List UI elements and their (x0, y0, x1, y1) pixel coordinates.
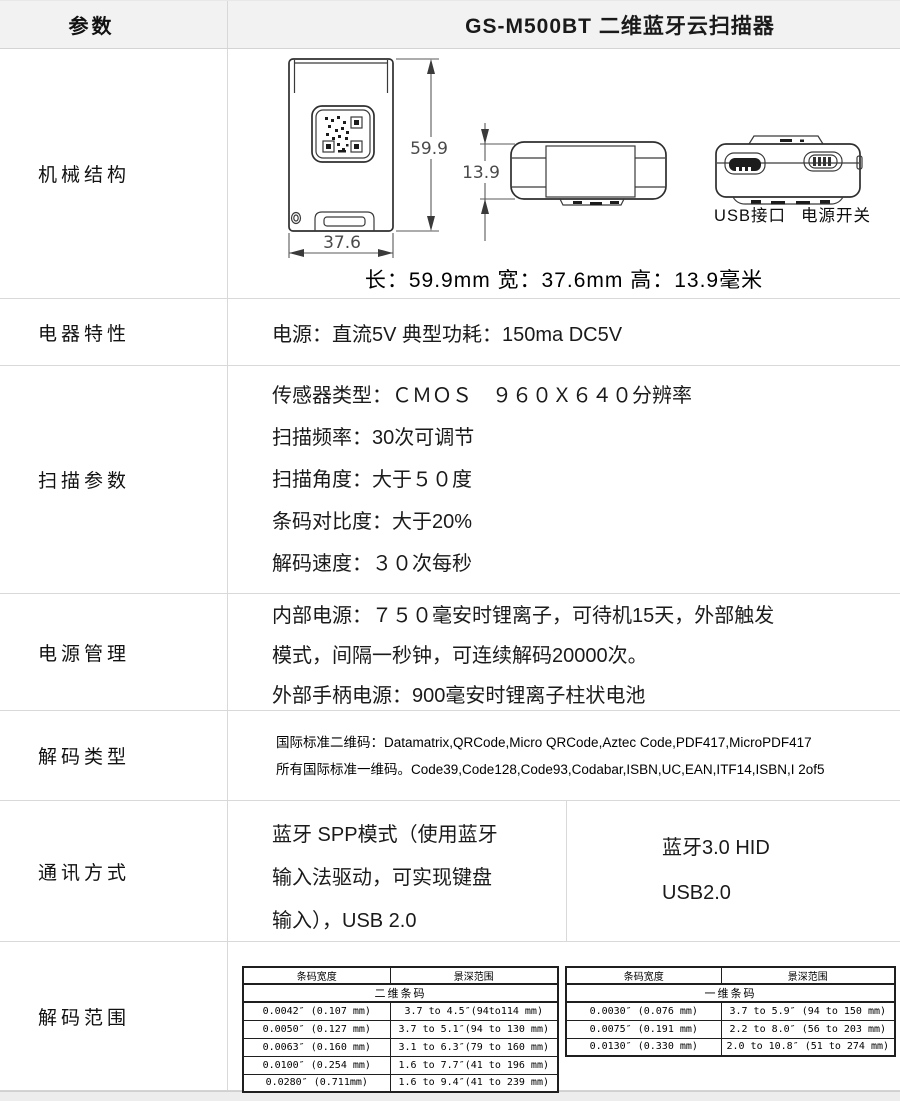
table-cell: 0.0100″ (0.254 mm) (243, 1056, 390, 1074)
scan-spec-line: 扫描频率：30次可调节 (272, 417, 900, 459)
table-cell: 0.0030″ (0.076 mm) (566, 1002, 721, 1020)
power-spec-line: 外部手柄电源：900毫安时锂离子柱状电池 (272, 676, 900, 716)
row-label-communication: 通讯方式 (0, 801, 228, 941)
dimension-59-9: 59.9 (396, 59, 454, 231)
row-electrical: 电器特性 电源：直流5V 典型功耗：150ma DC5V (0, 299, 900, 366)
usb-port-label: USB接口 (714, 206, 786, 225)
comm-line: 输入法驱动，可实现键盘 (272, 857, 566, 900)
scanner-front-view (289, 59, 393, 231)
row-communication: 通讯方式 蓝牙 SPP模式（使用蓝牙 输入法驱动，可实现键盘 输入），USB 2… (0, 801, 900, 942)
column-header: 景深范围 (390, 967, 558, 984)
table-cell: 2.0 to 10.8″ (51 to 274 mm) (721, 1038, 895, 1056)
scan-spec-line: 条码对比度：大于20% (272, 501, 900, 543)
svg-text:37.6: 37.6 (323, 233, 361, 253)
dimension-13-9: 13.9 (457, 123, 515, 241)
row-label-electrical: 电器特性 (0, 299, 228, 365)
table-cell: 2.2 to 8.0″ (56 to 203 mm) (721, 1020, 895, 1038)
column-header: 条码宽度 (243, 967, 390, 984)
dimension-caption: 长：59.9mm 宽：37.6mm 高：13.9毫米 (228, 261, 900, 297)
svg-text:59.9: 59.9 (410, 139, 448, 159)
table-row: 0.0050″ (0.127 mm)3.7 to 5.1″(94 to 130 … (243, 1020, 558, 1038)
table-cell: 0.0280″ (0.711mm) (243, 1074, 390, 1092)
row-label-power: 电源管理 (0, 594, 228, 710)
table-section-title: 一维条码 (566, 984, 895, 1002)
table-cell: 0.0130″ (0.330 mm) (566, 1038, 721, 1056)
decode-type-line: 所有国际标准一维码。Code39,Code128,Code93,Codabar,… (276, 756, 900, 783)
product-title: GS-M500BT 二维蓝牙云扫描器 (228, 1, 900, 48)
table-cell: 0.0042″ (0.107 mm) (243, 1002, 390, 1020)
row-decode-types: 解码类型 国际标准二维码：Datamatrix,QRCode,Micro QRC… (0, 711, 900, 801)
comm-line: 输入），USB 2.0 (272, 900, 566, 943)
row-label-mechanical: 机械结构 (0, 49, 228, 298)
comm-line: 蓝牙 SPP模式（使用蓝牙 (272, 814, 566, 857)
table-cell: 1.6 to 7.7″(41 to 196 mm) (390, 1056, 558, 1074)
electrical-spec-text: 电源：直流5V 典型功耗：150ma DC5V (228, 299, 900, 365)
communication-spp-cell: 蓝牙 SPP模式（使用蓝牙 输入法驱动，可实现键盘 输入），USB 2.0 (228, 801, 567, 941)
row-power: 电源管理 内部电源：７５０毫安时锂离子，可待机15天，外部触发 模式，间隔一秒钟… (0, 594, 900, 711)
header-param-label: 参数 (0, 1, 228, 48)
decode-type-line: 国际标准二维码：Datamatrix,QRCode,Micro QRCode,A… (276, 729, 900, 756)
usb-port-icon (725, 153, 765, 174)
scan-spec-line: 解码速度：３０次每秒 (272, 543, 900, 585)
power-switch-label: 电源开关 (801, 206, 871, 225)
dimension-37-6: 37.6 (289, 233, 393, 258)
table-cell: 3.7 to 5.1″(94 to 130 mm) (390, 1020, 558, 1038)
scanner-port-view: USB接口 电源开关 (714, 136, 871, 225)
table-row: 0.0100″ (0.254 mm)1.6 to 7.7″(41 to 196 … (243, 1056, 558, 1074)
comm-line: 蓝牙3.0 HID (662, 826, 900, 871)
row-mechanical: 机械结构 (0, 49, 900, 299)
decode-range-table-1d: 条码宽度 景深范围 一维条码 0.0030″ (0.076 mm)3.7 to … (565, 966, 896, 1057)
svg-text:13.9: 13.9 (462, 163, 500, 183)
table-cell: 0.0063″ (0.160 mm) (243, 1038, 390, 1056)
column-header: 条码宽度 (566, 967, 721, 984)
table-cell: 3.7 to 4.5″(94to114 mm) (390, 1002, 558, 1020)
scan-spec-line: 传感器类型：ＣＭＯＳ ９６０Ｘ６４０分辨率 (272, 375, 900, 417)
comm-line: USB2.0 (662, 871, 900, 916)
row-scanning: 扫描参数 传感器类型：ＣＭＯＳ ９６０Ｘ６４０分辨率 扫描频率：30次可调节 扫… (0, 366, 900, 594)
table-row: 0.0030″ (0.076 mm)3.7 to 5.9″ (94 to 150… (566, 1002, 895, 1020)
row-label-scanning: 扫描参数 (0, 366, 228, 593)
table-row: 0.0130″ (0.330 mm)2.0 to 10.8″ (51 to 27… (566, 1038, 895, 1056)
power-switch-icon (804, 152, 842, 171)
row-label-decode-range: 解码范围 (0, 942, 228, 1090)
scanner-dimension-drawing: 59.9 37.6 13.9 (228, 49, 899, 261)
table-cell: 0.0050″ (0.127 mm) (243, 1020, 390, 1038)
scan-spec-line: 扫描角度：大于５０度 (272, 459, 900, 501)
communication-hid-cell: 蓝牙3.0 HID USB2.0 (567, 801, 900, 941)
scanner-side-view (511, 142, 666, 205)
table-section-title: 二维条码 (243, 984, 558, 1002)
table-row: 0.0280″ (0.711mm)1.6 to 9.4″(41 to 239 m… (243, 1074, 558, 1092)
header-row: 参数 GS-M500BT 二维蓝牙云扫描器 (0, 1, 900, 49)
table-cell: 3.1 to 6.3″(79 to 160 mm) (390, 1038, 558, 1056)
table-cell: 3.7 to 5.9″ (94 to 150 mm) (721, 1002, 895, 1020)
table-row: 0.0075″ (0.191 mm)2.2 to 8.0″ (56 to 203… (566, 1020, 895, 1038)
table-cell: 1.6 to 9.4″(41 to 239 mm) (390, 1074, 558, 1092)
decode-range-table-2d: 条码宽度 景深范围 二维条码 0.0042″ (0.107 mm)3.7 to … (242, 966, 559, 1093)
power-spec-line: 内部电源：７５０毫安时锂离子，可待机15天，外部触发 (272, 596, 900, 636)
column-header: 景深范围 (721, 967, 895, 984)
table-row: 0.0063″ (0.160 mm)3.1 to 6.3″(79 to 160 … (243, 1038, 558, 1056)
table-row: 0.0042″ (0.107 mm)3.7 to 4.5″(94to114 mm… (243, 1002, 558, 1020)
row-label-decode-types: 解码类型 (0, 711, 228, 800)
qr-code-graphic (323, 116, 362, 153)
spec-sheet: 参数 GS-M500BT 二维蓝牙云扫描器 机械结构 (0, 0, 900, 1101)
row-decode-range: 解码范围 条码宽度 景深范围 二维条码 0.0042″ (0.107 mm)3.… (0, 942, 900, 1091)
power-spec-line: 模式，间隔一秒钟，可连续解码20000次。 (272, 636, 900, 676)
table-cell: 0.0075″ (0.191 mm) (566, 1020, 721, 1038)
